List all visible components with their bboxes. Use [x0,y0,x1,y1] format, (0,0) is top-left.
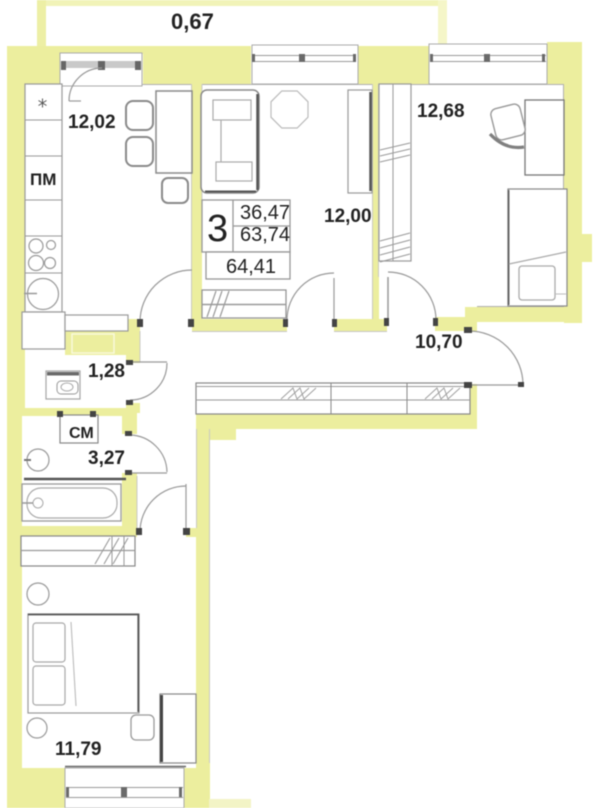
svg-text:12,68: 12,68 [417,101,465,122]
svg-text:0,67: 0,67 [171,9,214,34]
svg-text:1,28: 1,28 [88,361,125,382]
svg-text:СМ: СМ [69,425,94,442]
svg-text:ПМ: ПМ [30,170,56,189]
svg-text:3,27: 3,27 [88,448,125,469]
svg-text:11,79: 11,79 [55,739,102,760]
svg-text:3: 3 [207,208,228,250]
svg-text:10,70: 10,70 [415,332,463,353]
svg-text:64,41: 64,41 [226,256,276,278]
svg-text:36,47: 36,47 [240,202,290,224]
svg-text:12,02: 12,02 [68,112,116,133]
svg-text:12,00: 12,00 [324,206,372,227]
svg-text:63,74: 63,74 [240,224,290,246]
